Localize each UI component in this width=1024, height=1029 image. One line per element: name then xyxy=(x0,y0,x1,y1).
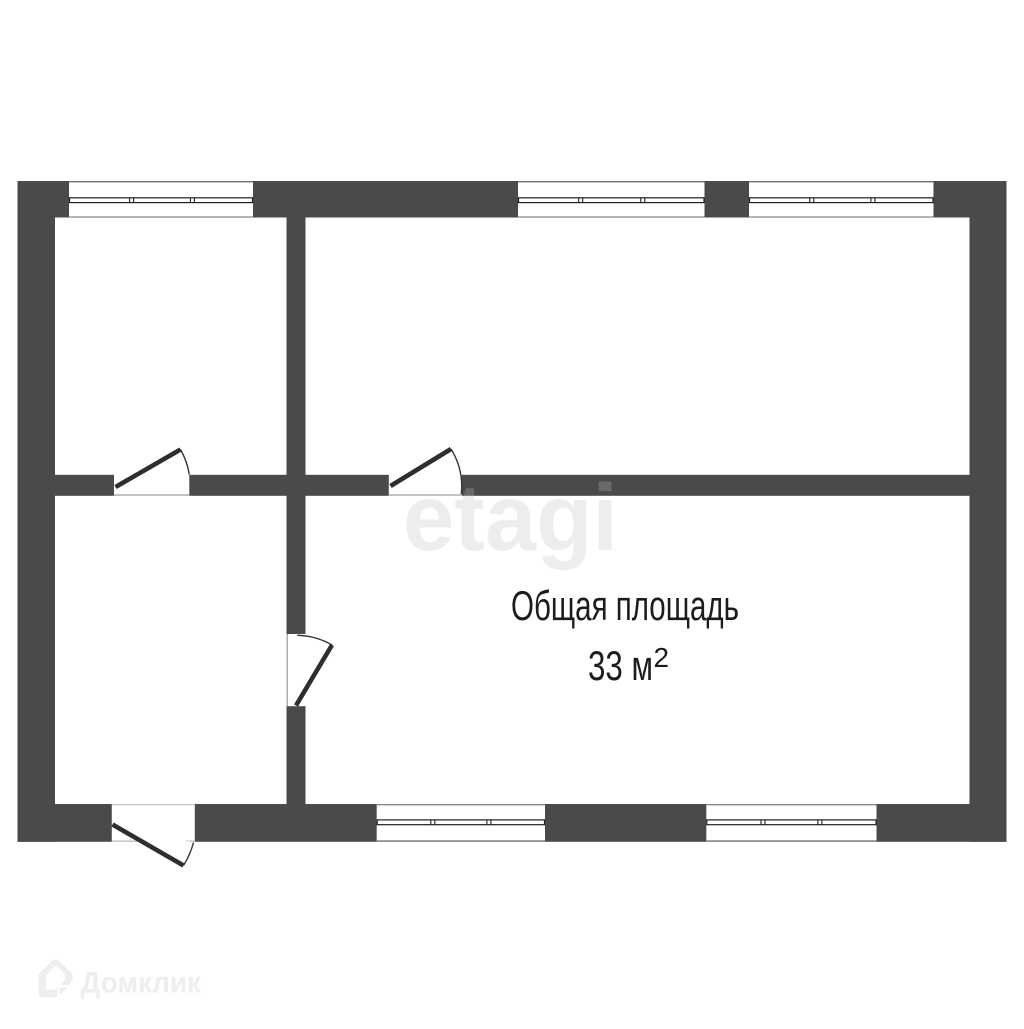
svg-text:etagi: etagi xyxy=(403,465,618,571)
svg-text:Домклик: Домклик xyxy=(81,967,202,1000)
svg-text:2: 2 xyxy=(654,642,670,673)
svg-text:Общая площадь: Общая площадь xyxy=(511,582,739,629)
svg-text:33 м: 33 м xyxy=(588,642,653,689)
